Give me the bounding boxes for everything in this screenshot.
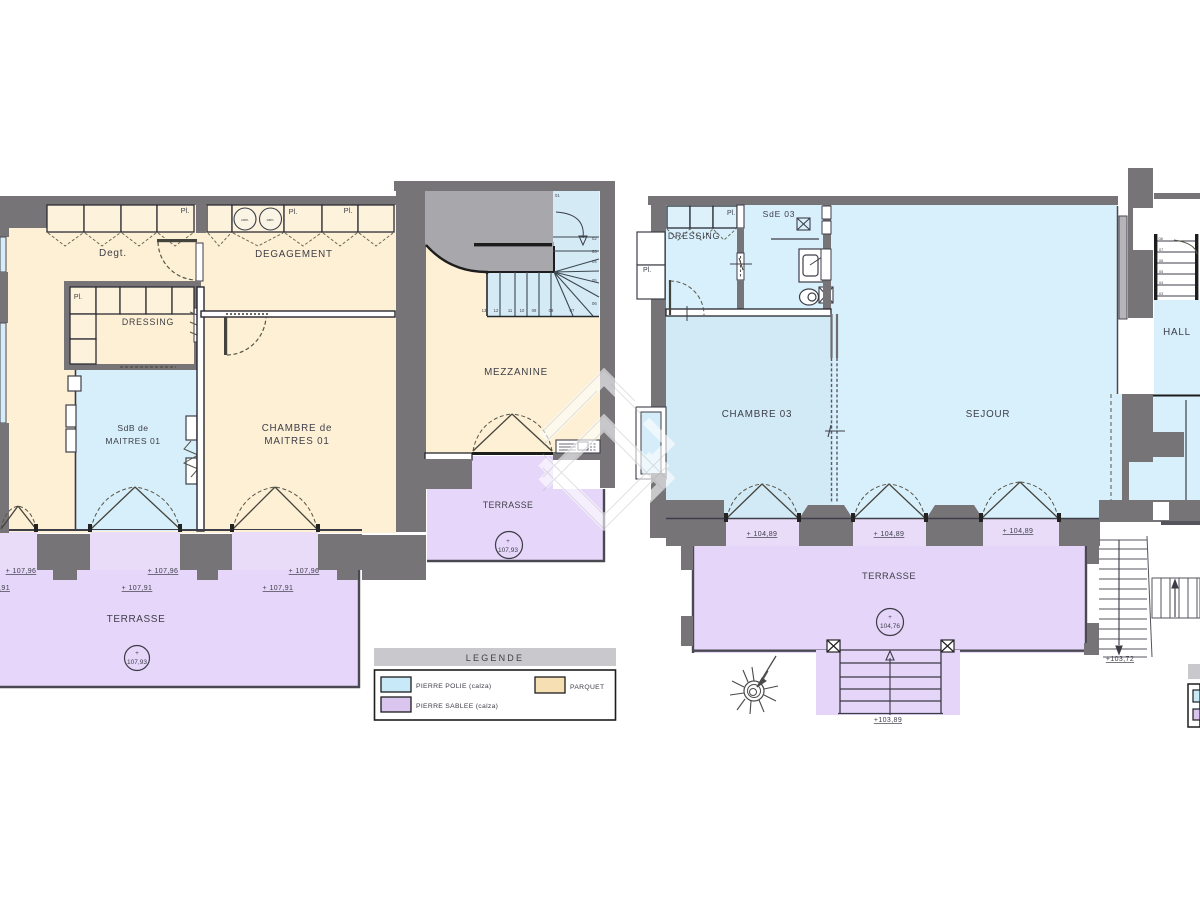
svg-text:06: 06 <box>592 301 597 306</box>
svg-text:08: 08 <box>549 308 554 313</box>
svg-text:PIERRE POLIE (calza): PIERRE POLIE (calza) <box>416 683 492 690</box>
svg-text:cam.: cam. <box>267 218 275 222</box>
svg-text:+ 104,89: + 104,89 <box>1003 528 1034 535</box>
svg-text:07: 07 <box>570 308 575 313</box>
svg-text:+ 107,96: + 107,96 <box>289 568 320 575</box>
svg-text:SdE 03: SdE 03 <box>763 209 796 219</box>
svg-text:+103,89: +103,89 <box>874 717 902 724</box>
svg-text:PARQUET: PARQUET <box>570 684 604 691</box>
svg-text:MAITRES 01: MAITRES 01 <box>264 436 329 447</box>
svg-text:Pl.: Pl. <box>643 267 651 274</box>
svg-text:TERRASSE: TERRASSE <box>483 500 534 510</box>
svg-text:09: 09 <box>532 308 537 313</box>
svg-text:CHAMBRE de: CHAMBRE de <box>262 423 333 434</box>
svg-text:107,93: 107,93 <box>498 547 518 554</box>
svg-text:Pl.: Pl. <box>181 206 190 215</box>
svg-text:Pl.: Pl. <box>727 210 735 217</box>
svg-text:MAITRES 01: MAITRES 01 <box>105 436 160 446</box>
svg-text:MEZZANINE: MEZZANINE <box>484 367 548 378</box>
svg-text:DRESSING: DRESSING <box>122 317 174 327</box>
svg-text:PIERRE SABLEE (calza): PIERRE SABLEE (calza) <box>416 703 498 710</box>
svg-text:CHAMBRE 03: CHAMBRE 03 <box>722 409 793 420</box>
svg-text:10: 10 <box>520 308 525 313</box>
svg-text:06: 06 <box>1159 259 1163 263</box>
svg-text:+ 104,89: + 104,89 <box>747 531 778 538</box>
svg-text:01: 01 <box>555 193 560 198</box>
svg-text:+ 107,91: + 107,91 <box>0 585 10 592</box>
svg-text:12: 12 <box>494 308 499 313</box>
svg-text:+ 107,96: + 107,96 <box>6 568 37 575</box>
svg-text:04: 04 <box>1159 281 1163 285</box>
svg-text:07: 07 <box>1159 248 1163 252</box>
svg-text:Pl.: Pl. <box>289 207 298 216</box>
svg-text:03: 03 <box>1159 292 1163 296</box>
svg-text:+: + <box>506 539 510 545</box>
svg-text:05: 05 <box>1159 270 1163 274</box>
svg-text:+ 107,91: + 107,91 <box>263 585 294 592</box>
svg-text:03: 03 <box>592 249 597 254</box>
svg-text:LEGENDE: LEGENDE <box>466 653 524 663</box>
svg-text:cam.: cam. <box>241 218 249 222</box>
svg-text:08: 08 <box>1159 237 1163 241</box>
svg-text:DEGAGEMENT: DEGAGEMENT <box>255 249 333 260</box>
svg-text:05: 05 <box>592 278 597 283</box>
svg-text:TERRASSE: TERRASSE <box>107 614 166 625</box>
svg-text:SdB de: SdB de <box>117 423 148 433</box>
svg-text:+: + <box>888 615 892 621</box>
svg-text:+ 107,96: + 107,96 <box>148 568 179 575</box>
svg-text:107,93: 107,93 <box>127 659 147 666</box>
svg-text:+ 107,91: + 107,91 <box>122 585 153 592</box>
svg-text:02: 02 <box>592 236 597 241</box>
svg-text:Degt.: Degt. <box>99 248 127 259</box>
svg-text:HALL: HALL <box>1163 327 1191 338</box>
svg-text:104,76: 104,76 <box>880 623 900 630</box>
svg-text:Pl.: Pl. <box>344 206 353 215</box>
svg-text:11: 11 <box>508 308 513 313</box>
svg-text:TERRASSE: TERRASSE <box>862 571 916 581</box>
svg-text:04: 04 <box>592 259 597 264</box>
svg-text:+103,72: +103,72 <box>1106 656 1134 663</box>
svg-text:DRESSING: DRESSING <box>668 231 720 241</box>
svg-text:SEJOUR: SEJOUR <box>966 409 1011 420</box>
svg-text:Pl.: Pl. <box>74 294 82 301</box>
svg-text:+ 104,89: + 104,89 <box>874 531 905 538</box>
svg-text:13: 13 <box>482 308 487 313</box>
svg-text:+: + <box>135 651 139 657</box>
